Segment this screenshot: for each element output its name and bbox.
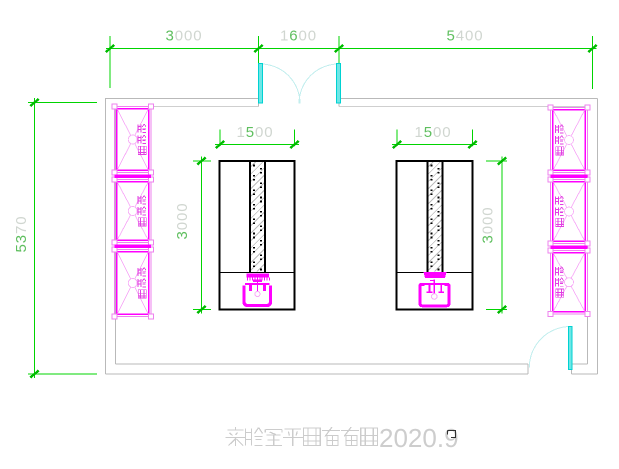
svg-text:5400: 5400: [447, 28, 484, 45]
svg-text:3000: 3000: [480, 207, 497, 244]
svg-text:5370: 5370: [13, 216, 30, 253]
svg-text:2020.9: 2020.9: [379, 423, 459, 453]
svg-text:1600: 1600: [280, 28, 317, 45]
svg-text:1500: 1500: [415, 124, 452, 141]
svg-text:1500: 1500: [237, 124, 274, 141]
svg-text:3000: 3000: [174, 203, 191, 240]
svg-text:3000: 3000: [166, 28, 203, 45]
